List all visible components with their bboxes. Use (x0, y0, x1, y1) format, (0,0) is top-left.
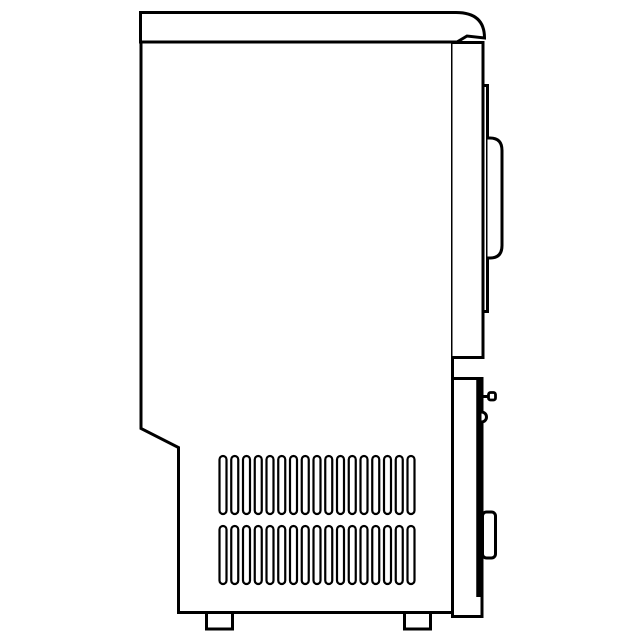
hinge-pin-tip (489, 393, 496, 401)
vent-slot (231, 526, 238, 584)
vent-slot (267, 526, 274, 584)
vent-slot (408, 456, 415, 514)
vent-slot (267, 456, 274, 514)
vent-slot (314, 526, 321, 584)
vent-slot (302, 456, 309, 514)
vent-slot (361, 526, 368, 584)
vent-slot (231, 456, 238, 514)
vent-slot (361, 456, 368, 514)
door-handle (488, 138, 503, 258)
vent-slot (337, 456, 344, 514)
drawing-canvas (0, 0, 640, 640)
vent-slot (290, 456, 297, 514)
vent-slot (384, 456, 391, 514)
vent-slot (325, 526, 332, 584)
vent-slot (243, 526, 250, 584)
vent-slot (349, 456, 356, 514)
appliance-line-drawing (0, 0, 640, 640)
vent-slot (325, 456, 332, 514)
feet (207, 613, 431, 630)
vent-slot (372, 456, 379, 514)
upper-door-panel (453, 43, 484, 358)
vent-slot (408, 526, 415, 584)
latch-notch (482, 412, 487, 422)
vent-slot (278, 456, 285, 514)
vent-slot (396, 526, 403, 584)
foot (405, 613, 431, 630)
vent-slot (384, 526, 391, 584)
lid (141, 13, 485, 43)
vent-slot (243, 456, 250, 514)
vent-slot (302, 526, 309, 584)
vent-slot (349, 526, 356, 584)
foot (207, 613, 233, 630)
vent-slot (220, 456, 227, 514)
vent-slot (337, 526, 344, 584)
vent-slot (255, 526, 262, 584)
vent-slot (396, 456, 403, 514)
vent-slot (290, 526, 297, 584)
vent-slot (314, 456, 321, 514)
vent-slot (372, 526, 379, 584)
vent-slot (278, 526, 285, 584)
vent-slot (255, 456, 262, 514)
panel-grip (483, 512, 496, 558)
vent-slot (220, 526, 227, 584)
